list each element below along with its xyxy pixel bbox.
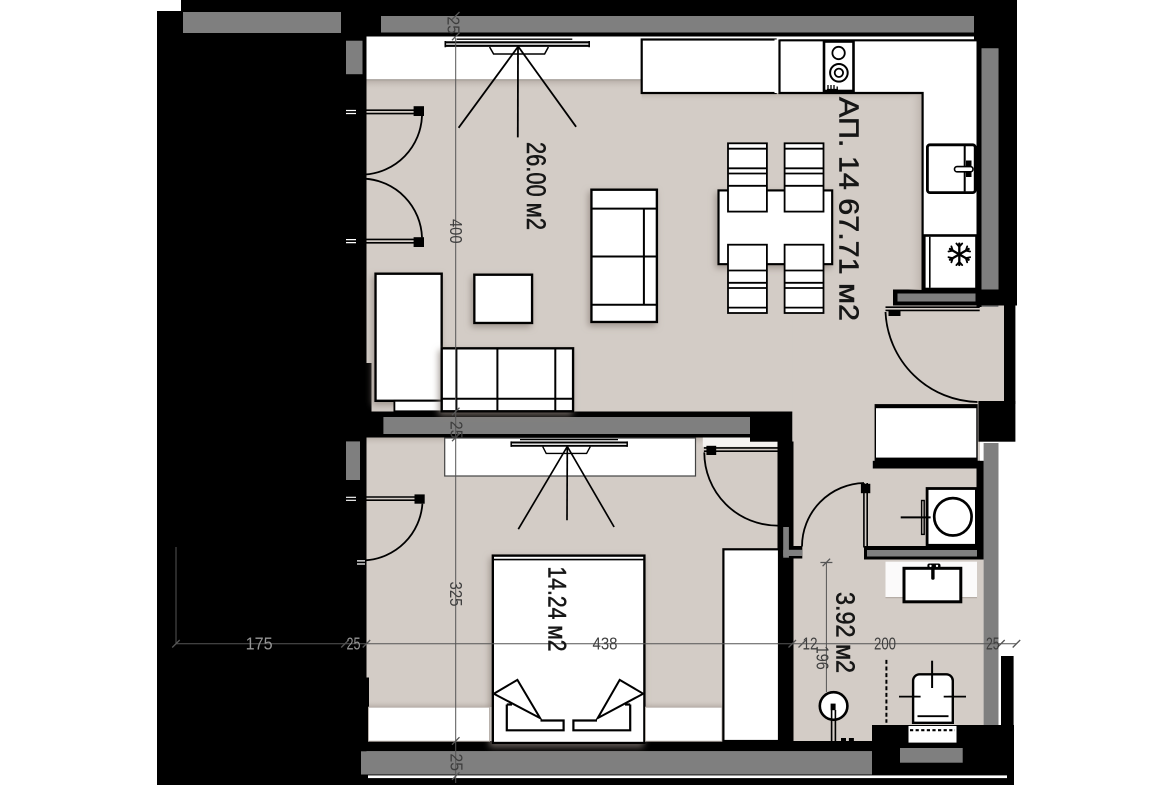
svg-text:25: 25 bbox=[986, 634, 1000, 654]
svg-text:3.92 м2: 3.92 м2 bbox=[830, 592, 860, 673]
svg-text:200: 200 bbox=[874, 634, 896, 654]
svg-text:АП. 14 67.71 м2: АП. 14 67.71 м2 bbox=[833, 97, 864, 321]
svg-text:438: 438 bbox=[593, 634, 618, 654]
svg-text:25: 25 bbox=[444, 17, 464, 35]
svg-text:400: 400 bbox=[446, 219, 466, 244]
svg-text:25: 25 bbox=[347, 634, 361, 654]
svg-text:325: 325 bbox=[446, 582, 466, 607]
svg-text:26.00 м2: 26.00 м2 bbox=[521, 142, 551, 230]
svg-text:175: 175 bbox=[246, 634, 273, 654]
svg-text:14.24 м2: 14.24 м2 bbox=[543, 567, 571, 652]
svg-text:25: 25 bbox=[446, 421, 466, 439]
svg-text:196: 196 bbox=[812, 646, 832, 670]
svg-text:25: 25 bbox=[446, 754, 466, 772]
